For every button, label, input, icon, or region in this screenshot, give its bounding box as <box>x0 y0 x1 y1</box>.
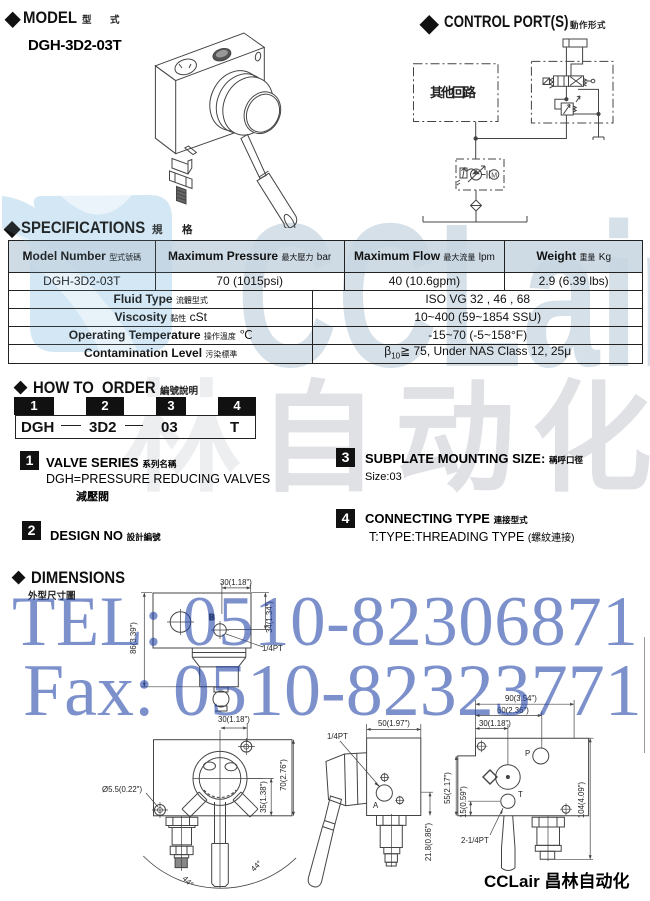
svg-text:T: T <box>518 790 523 799</box>
svg-text:55(2.17"): 55(2.17") <box>443 772 452 804</box>
svg-text:2-1/4PT: 2-1/4PT <box>461 836 489 845</box>
svg-text:15(0.59"): 15(0.59") <box>459 786 468 818</box>
svg-text:A: A <box>373 801 379 810</box>
svg-text:35(1.38"): 35(1.38") <box>259 781 268 813</box>
svg-text:44°: 44° <box>249 859 264 874</box>
svg-text:P: P <box>525 749 530 758</box>
svg-text:44°: 44° <box>181 874 196 889</box>
svg-text:104(4.09"): 104(4.09") <box>577 782 586 819</box>
svg-text:Ø5.5(0.22"): Ø5.5(0.22") <box>102 785 142 794</box>
svg-text:M: M <box>491 173 497 180</box>
svg-text:其他回路: 其他回路 <box>430 85 477 100</box>
svg-text:70(2.76"): 70(2.76") <box>279 759 288 791</box>
svg-text:21.8(0.86"): 21.8(0.86") <box>424 822 433 861</box>
